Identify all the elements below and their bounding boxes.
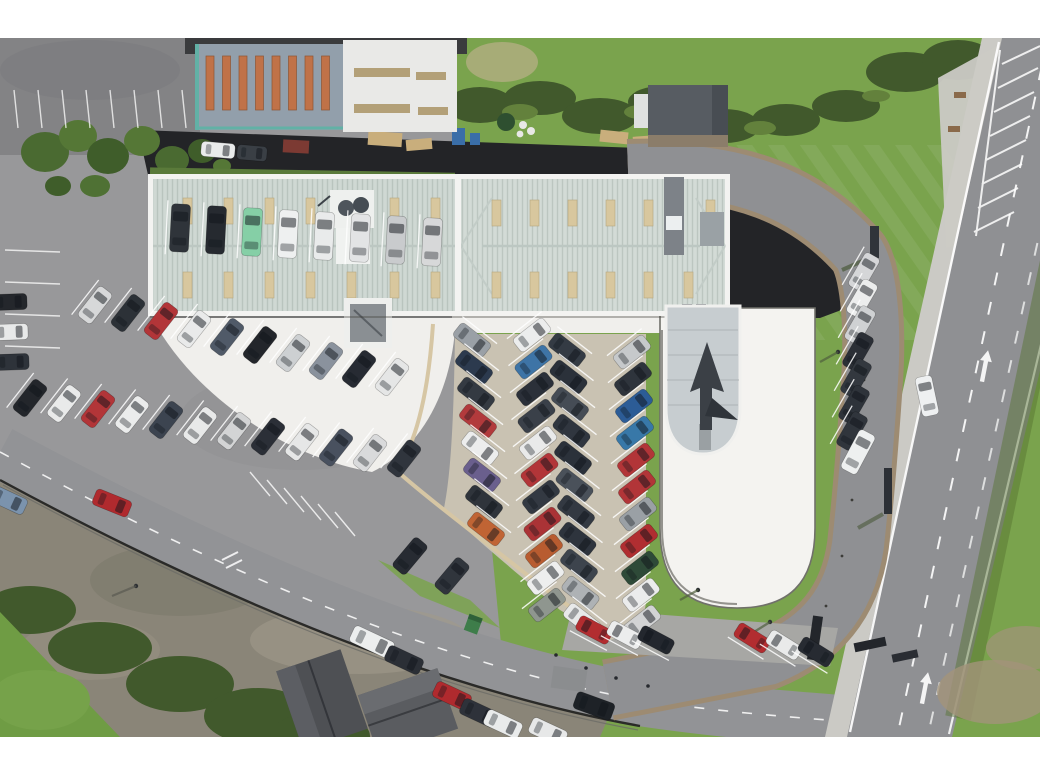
car	[0, 353, 29, 370]
carport-roof	[551, 666, 588, 693]
white-roof-building	[343, 40, 457, 132]
red-trailer	[283, 139, 310, 153]
car	[0, 293, 27, 310]
car	[236, 144, 267, 162]
small-grey-building	[634, 85, 728, 147]
car	[0, 323, 28, 340]
rooftop-unit-front	[344, 298, 392, 348]
white-strip-under-building	[452, 316, 664, 333]
car	[200, 141, 235, 159]
blue-roof-building	[195, 44, 343, 130]
asphalt-mottle	[0, 40, 180, 100]
roof-chimney-box	[666, 216, 682, 230]
green-tank	[497, 113, 515, 131]
dirt-patch	[466, 42, 538, 82]
letterbox-top	[0, 0, 1040, 38]
roof-grey-patch	[700, 212, 724, 246]
letterbox-bottom	[0, 737, 1040, 780]
aerial-photo-page	[0, 0, 1040, 780]
roof-section-seam	[455, 176, 461, 314]
entrance-canopy	[666, 306, 740, 454]
aerial-photo-of-car-dealership	[0, 0, 1040, 780]
